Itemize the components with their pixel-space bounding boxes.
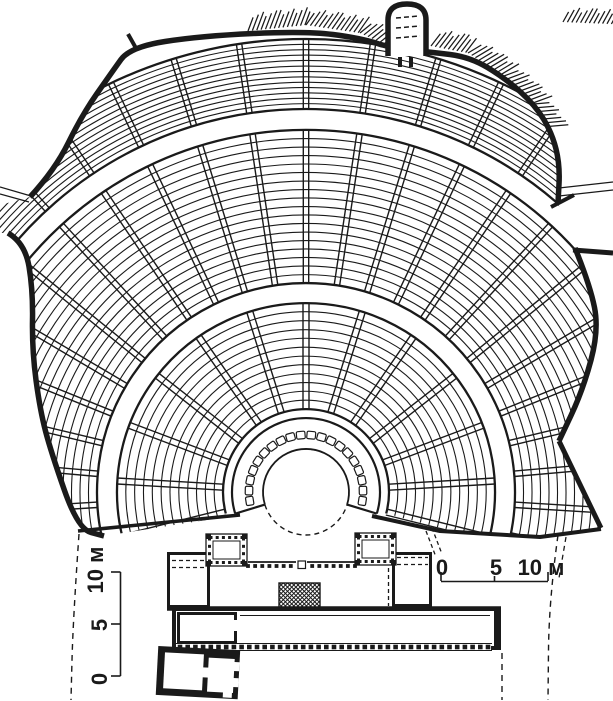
scale-label: 10 м xyxy=(83,547,108,594)
theatre-plan-figure: 0510 м0510 м xyxy=(0,0,613,701)
annex-building xyxy=(156,646,240,699)
scale-label: 5 xyxy=(490,555,502,580)
stage-building xyxy=(167,533,501,651)
scale-bar-left: 0510 м xyxy=(83,547,121,686)
prohedria-ring xyxy=(232,418,380,514)
theatre-plan-svg: 0510 м0510 м xyxy=(0,0,613,701)
scale-label: 5 xyxy=(87,619,112,631)
scale-bar-right: 0510 м xyxy=(436,555,565,582)
arched-gate xyxy=(388,4,426,67)
scale-label: 0 xyxy=(87,673,112,685)
scale-label: 0 xyxy=(436,555,448,580)
scale-label: 10 м xyxy=(518,555,565,580)
